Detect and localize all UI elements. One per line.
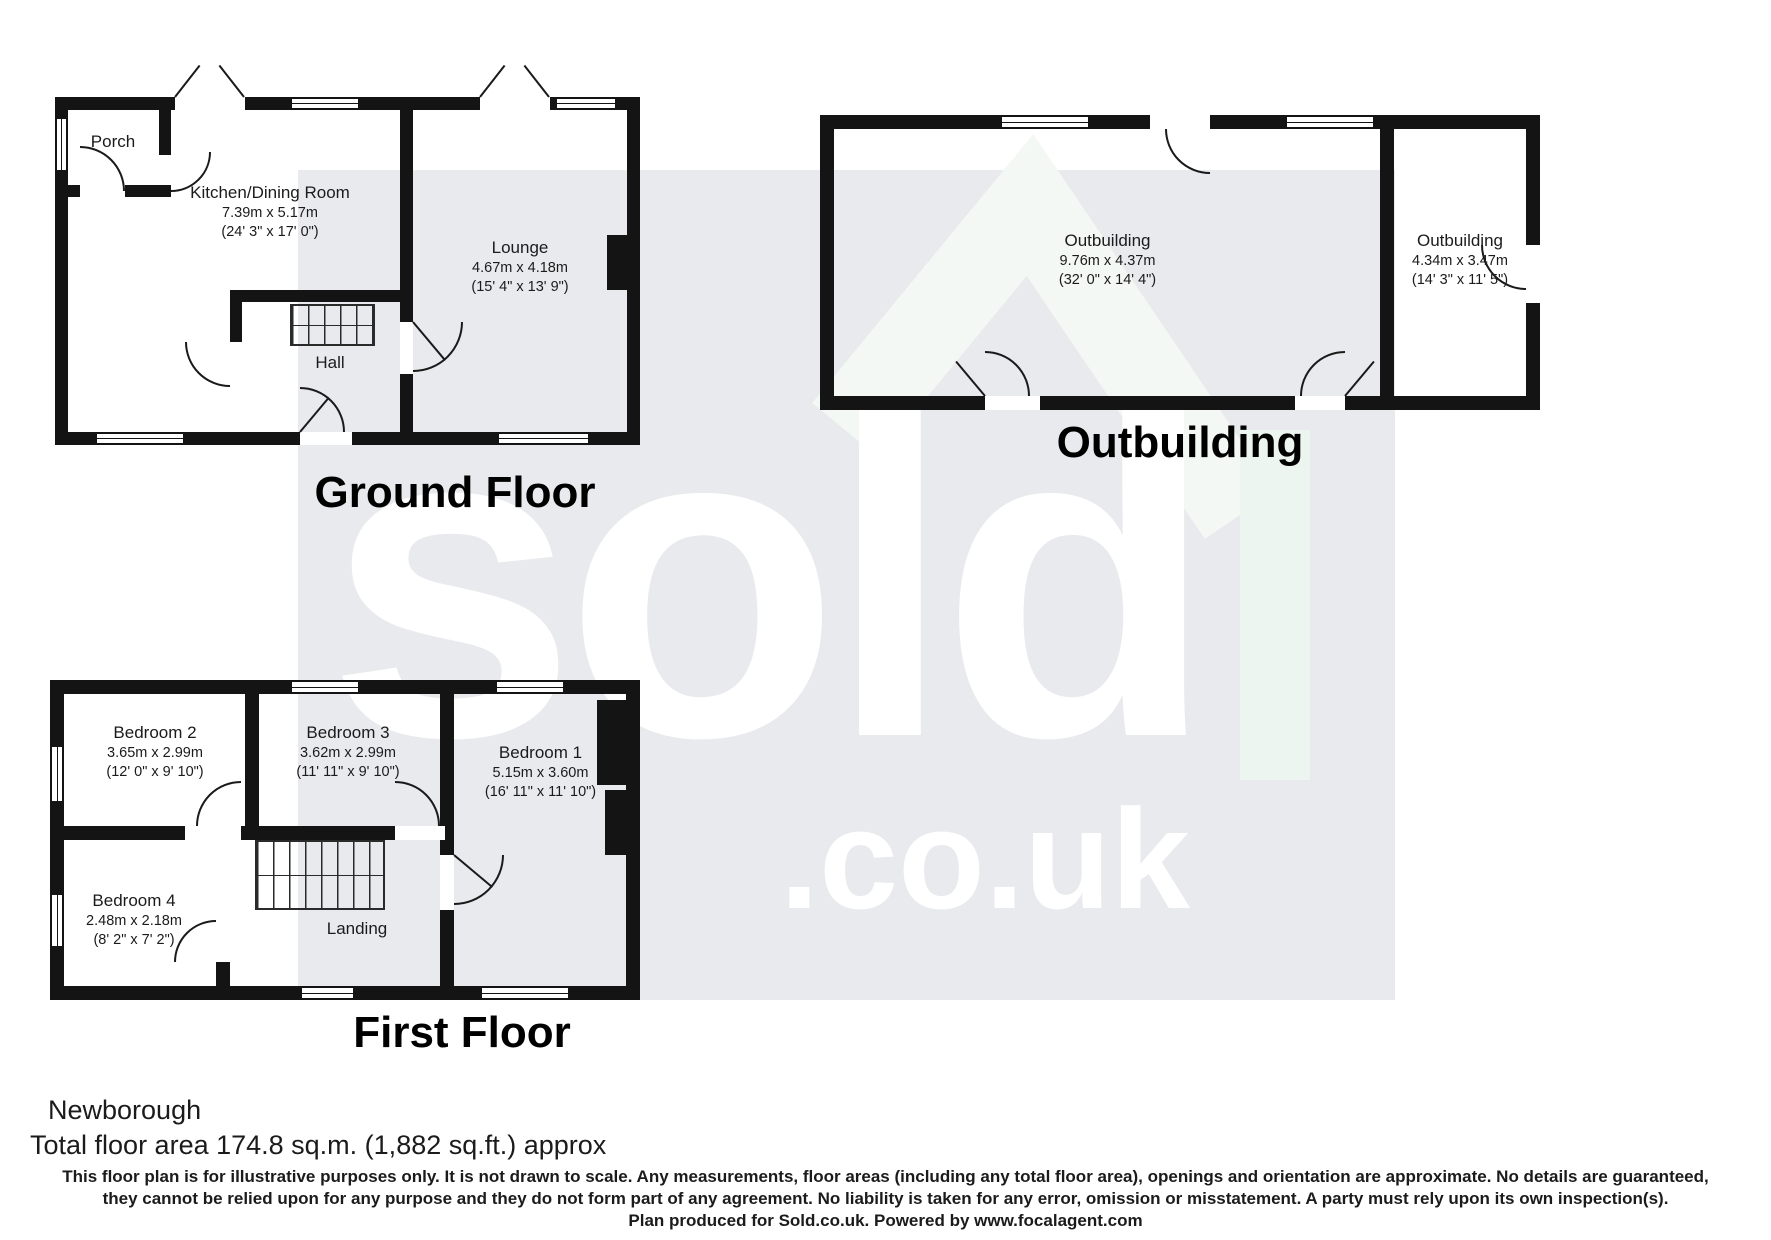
total-floor-area: Total floor area 174.8 sq.m. (1,882 sq.f… [30,1130,606,1161]
door-opening [1150,115,1210,129]
room-name: Bedroom 2 [75,722,235,744]
outbuilding-title: Outbuilding [980,418,1380,468]
window [555,97,617,110]
porch-wall [159,97,171,155]
ground-floor-title: Ground Floor [255,468,655,518]
door-opening [175,97,245,110]
door-opening [1295,396,1345,410]
house-wall-icon [1240,430,1310,780]
interior-wall [1380,115,1394,410]
hall-wall [230,290,413,302]
first-floor-title: First Floor [262,1008,662,1058]
room-label-bedroom2: Bedroom 2 3.65m x 2.99m (12' 0" x 9' 10"… [75,722,235,782]
room-size-imperial: (14' 3" x 11' 5") [1394,271,1526,290]
window [480,986,570,1000]
room-size-imperial: (12' 0" x 9' 10") [75,763,235,782]
room-label-kitchen: Kitchen/Dining Room 7.39m x 5.17m (24' 3… [150,182,390,242]
stairs [255,840,385,910]
wall [820,115,834,410]
room-size-imperial: (16' 11" x 11' 10") [458,783,623,802]
room-label-outbuilding-right: Outbuilding 4.34m x 3.47m (14' 3" x 11' … [1394,230,1526,290]
window [50,745,64,803]
chimney-block [607,235,640,290]
interior-wall [440,680,454,840]
door-leaf [955,361,985,397]
property-address: Newborough [48,1095,201,1126]
interior-wall [245,680,259,840]
window [300,986,355,1000]
room-label-bedroom4: Bedroom 4 2.48m x 2.18m (8' 2" x 7' 2") [64,890,204,950]
disclaimer-line1: This floor plan is for illustrative purp… [0,1166,1771,1188]
window [495,680,565,694]
room-name: Bedroom 1 [458,742,623,764]
room-size-metric: 2.48m x 2.18m [64,912,204,931]
room-name: Landing [302,918,412,940]
door-opening [300,432,352,445]
door-leaf [1344,361,1374,397]
room-size-imperial: (8' 2" x 7' 2") [64,931,204,950]
room-size-imperial: (32' 0" x 14' 4") [990,271,1225,290]
first-floor-plan: Bedroom 2 3.65m x 2.99m (12' 0" x 9' 10"… [50,680,640,1000]
room-label-porch: Porch [67,131,159,153]
room-name: Kitchen/Dining Room [150,182,390,204]
door-opening [985,396,1040,410]
ground-floor-plan: Porch Kitchen/Dining Room 7.39m x 5.17m … [55,97,640,445]
room-label-bedroom1: Bedroom 1 5.15m x 3.60m (16' 11" x 11' 1… [458,742,623,802]
room-size-metric: 7.39m x 5.17m [150,204,390,223]
room-size-imperial: (24' 3" x 17' 0") [150,223,390,242]
door-opening [230,342,242,390]
room-size-imperial: (15' 4" x 13' 9") [450,278,590,297]
door-opening [480,97,550,110]
door-opening [216,920,230,962]
window [290,97,360,110]
window [1285,115,1375,129]
door-opening [400,322,413,374]
window [95,432,185,445]
room-size-metric: 3.62m x 2.99m [263,744,433,763]
window [497,432,590,445]
door-opening [440,855,454,910]
interior-wall [400,97,413,445]
room-size-metric: 4.34m x 3.47m [1394,252,1526,271]
watermark-suffix: .co.uk [780,780,1191,939]
outbuilding-plan: Outbuilding 9.76m x 4.37m (32' 0" x 14' … [820,115,1540,410]
room-name: Porch [67,131,159,153]
room-name: Bedroom 4 [64,890,204,912]
room-label-bedroom3: Bedroom 3 3.62m x 2.99m (11' 11" x 9' 10… [263,722,433,782]
plan-credit: Plan produced for Sold.co.uk. Powered by… [0,1210,1771,1232]
room-name: Lounge [450,237,590,259]
room-name: Outbuilding [1394,230,1526,252]
room-name: Outbuilding [990,230,1225,252]
window [290,680,360,694]
wall [820,396,1540,410]
room-size-metric: 3.65m x 2.99m [75,744,235,763]
stairs [290,304,375,346]
floorplan-page: { "watermark": { "word": "sold", "suffix… [0,0,1771,1240]
wall [50,680,64,1000]
door-opening [185,826,241,840]
room-size-metric: 9.76m x 4.37m [990,252,1225,271]
room-label-landing: Landing [302,918,412,940]
room-name: Bedroom 3 [263,722,433,744]
window [50,893,64,948]
disclaimer-line2: they cannot be relied upon for any purpo… [0,1188,1771,1210]
room-size-metric: 5.15m x 3.60m [458,764,623,783]
room-label-hall: Hall [285,352,375,374]
door-opening [395,826,445,840]
room-size-imperial: (11' 11" x 9' 10") [263,763,433,782]
window [1000,115,1090,129]
room-label-outbuilding-left: Outbuilding 9.76m x 4.37m (32' 0" x 14' … [990,230,1225,290]
room-label-lounge: Lounge 4.67m x 4.18m (15' 4" x 13' 9") [450,237,590,297]
room-name: Hall [285,352,375,374]
door-opening [1526,245,1540,303]
room-size-metric: 4.67m x 4.18m [450,259,590,278]
